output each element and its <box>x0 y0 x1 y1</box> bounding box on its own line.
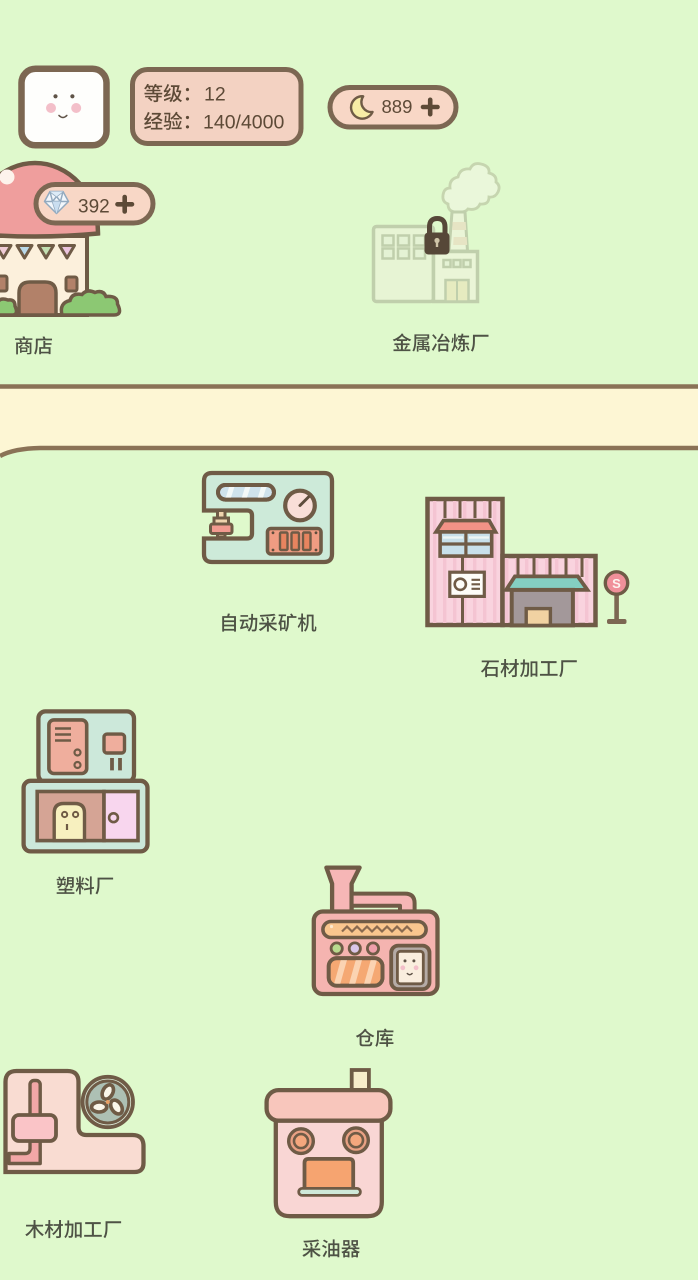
svg-text:392: 392 <box>78 197 110 218</box>
svg-text:140/4000: 140/4000 <box>203 111 284 133</box>
svg-text:12: 12 <box>204 84 226 106</box>
svg-text:889: 889 <box>382 96 413 117</box>
svg-text:S: S <box>612 576 621 591</box>
